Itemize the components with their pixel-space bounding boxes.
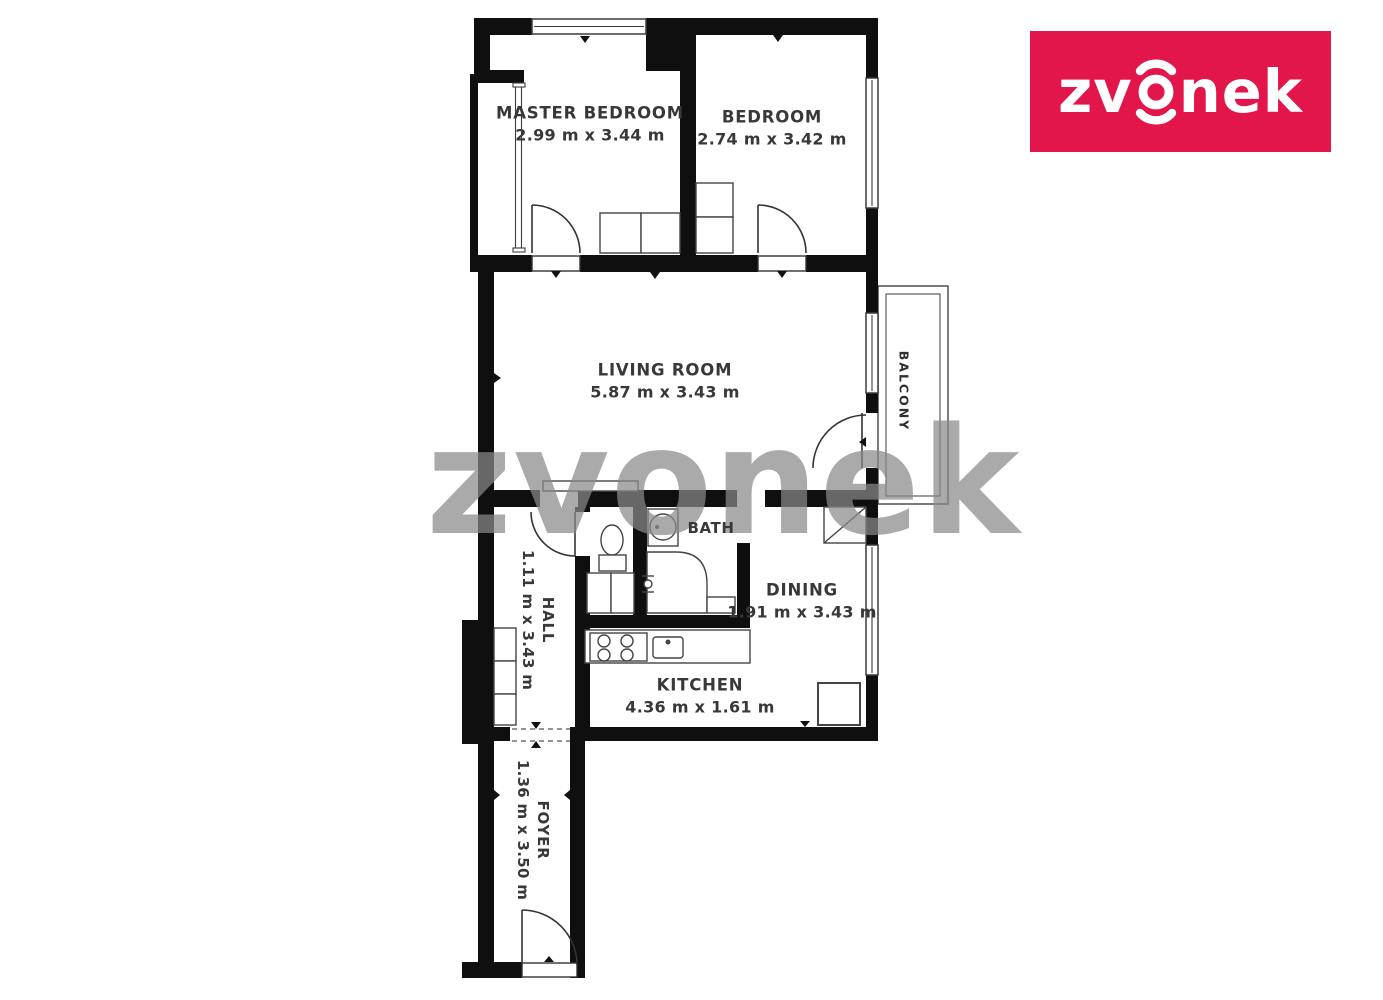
- room-label-bath: BATH: [687, 519, 734, 539]
- room-label-master-bedroom: MASTER BEDROOM 2.99 m x 3.44 m: [496, 103, 684, 146]
- room-label-kitchen: KITCHEN 4.36 m x 1.61 m: [625, 675, 774, 718]
- room-label-foyer: FOYER 1.36 m x 3.50 m: [512, 760, 552, 900]
- door-arc-master: [532, 205, 580, 253]
- brand-logo-text: zv nek: [1058, 48, 1303, 136]
- washer-icon: [587, 573, 611, 613]
- brand-text-right: nek: [1179, 62, 1303, 121]
- bedroom-wardrobe: [696, 183, 733, 217]
- door-slab-bedroom: [758, 256, 806, 271]
- room-label-balcony: BALCONY: [895, 351, 912, 431]
- bell-o-icon: [1135, 48, 1177, 136]
- watermark-text: zvonek: [426, 396, 1020, 568]
- master-furniture: [600, 213, 641, 253]
- door-slab-master: [532, 256, 580, 271]
- room-label-bedroom: BEDROOM 2.74 m x 3.42 m: [697, 107, 846, 150]
- hall-closet: [494, 628, 516, 661]
- brand-text-left: zv: [1058, 62, 1133, 121]
- room-label-hall: HALL 1.11 m x 3.43 m: [517, 550, 557, 690]
- dining-table: [818, 683, 860, 725]
- room-label-living-room: LIVING ROOM 5.87 m x 3.43 m: [590, 360, 739, 403]
- door-slab-entry: [522, 963, 577, 977]
- door-arc-bedroom: [758, 205, 806, 253]
- room-label-dining: DINING 1.91 m x 3.43 m: [727, 580, 876, 623]
- brand-logo: zv nek: [1030, 31, 1331, 152]
- passage-dashes: [512, 729, 570, 741]
- floorplan-canvas: zvonek MASTER BEDROOM 2.99 m x 3.44 m BE…: [0, 0, 1383, 1000]
